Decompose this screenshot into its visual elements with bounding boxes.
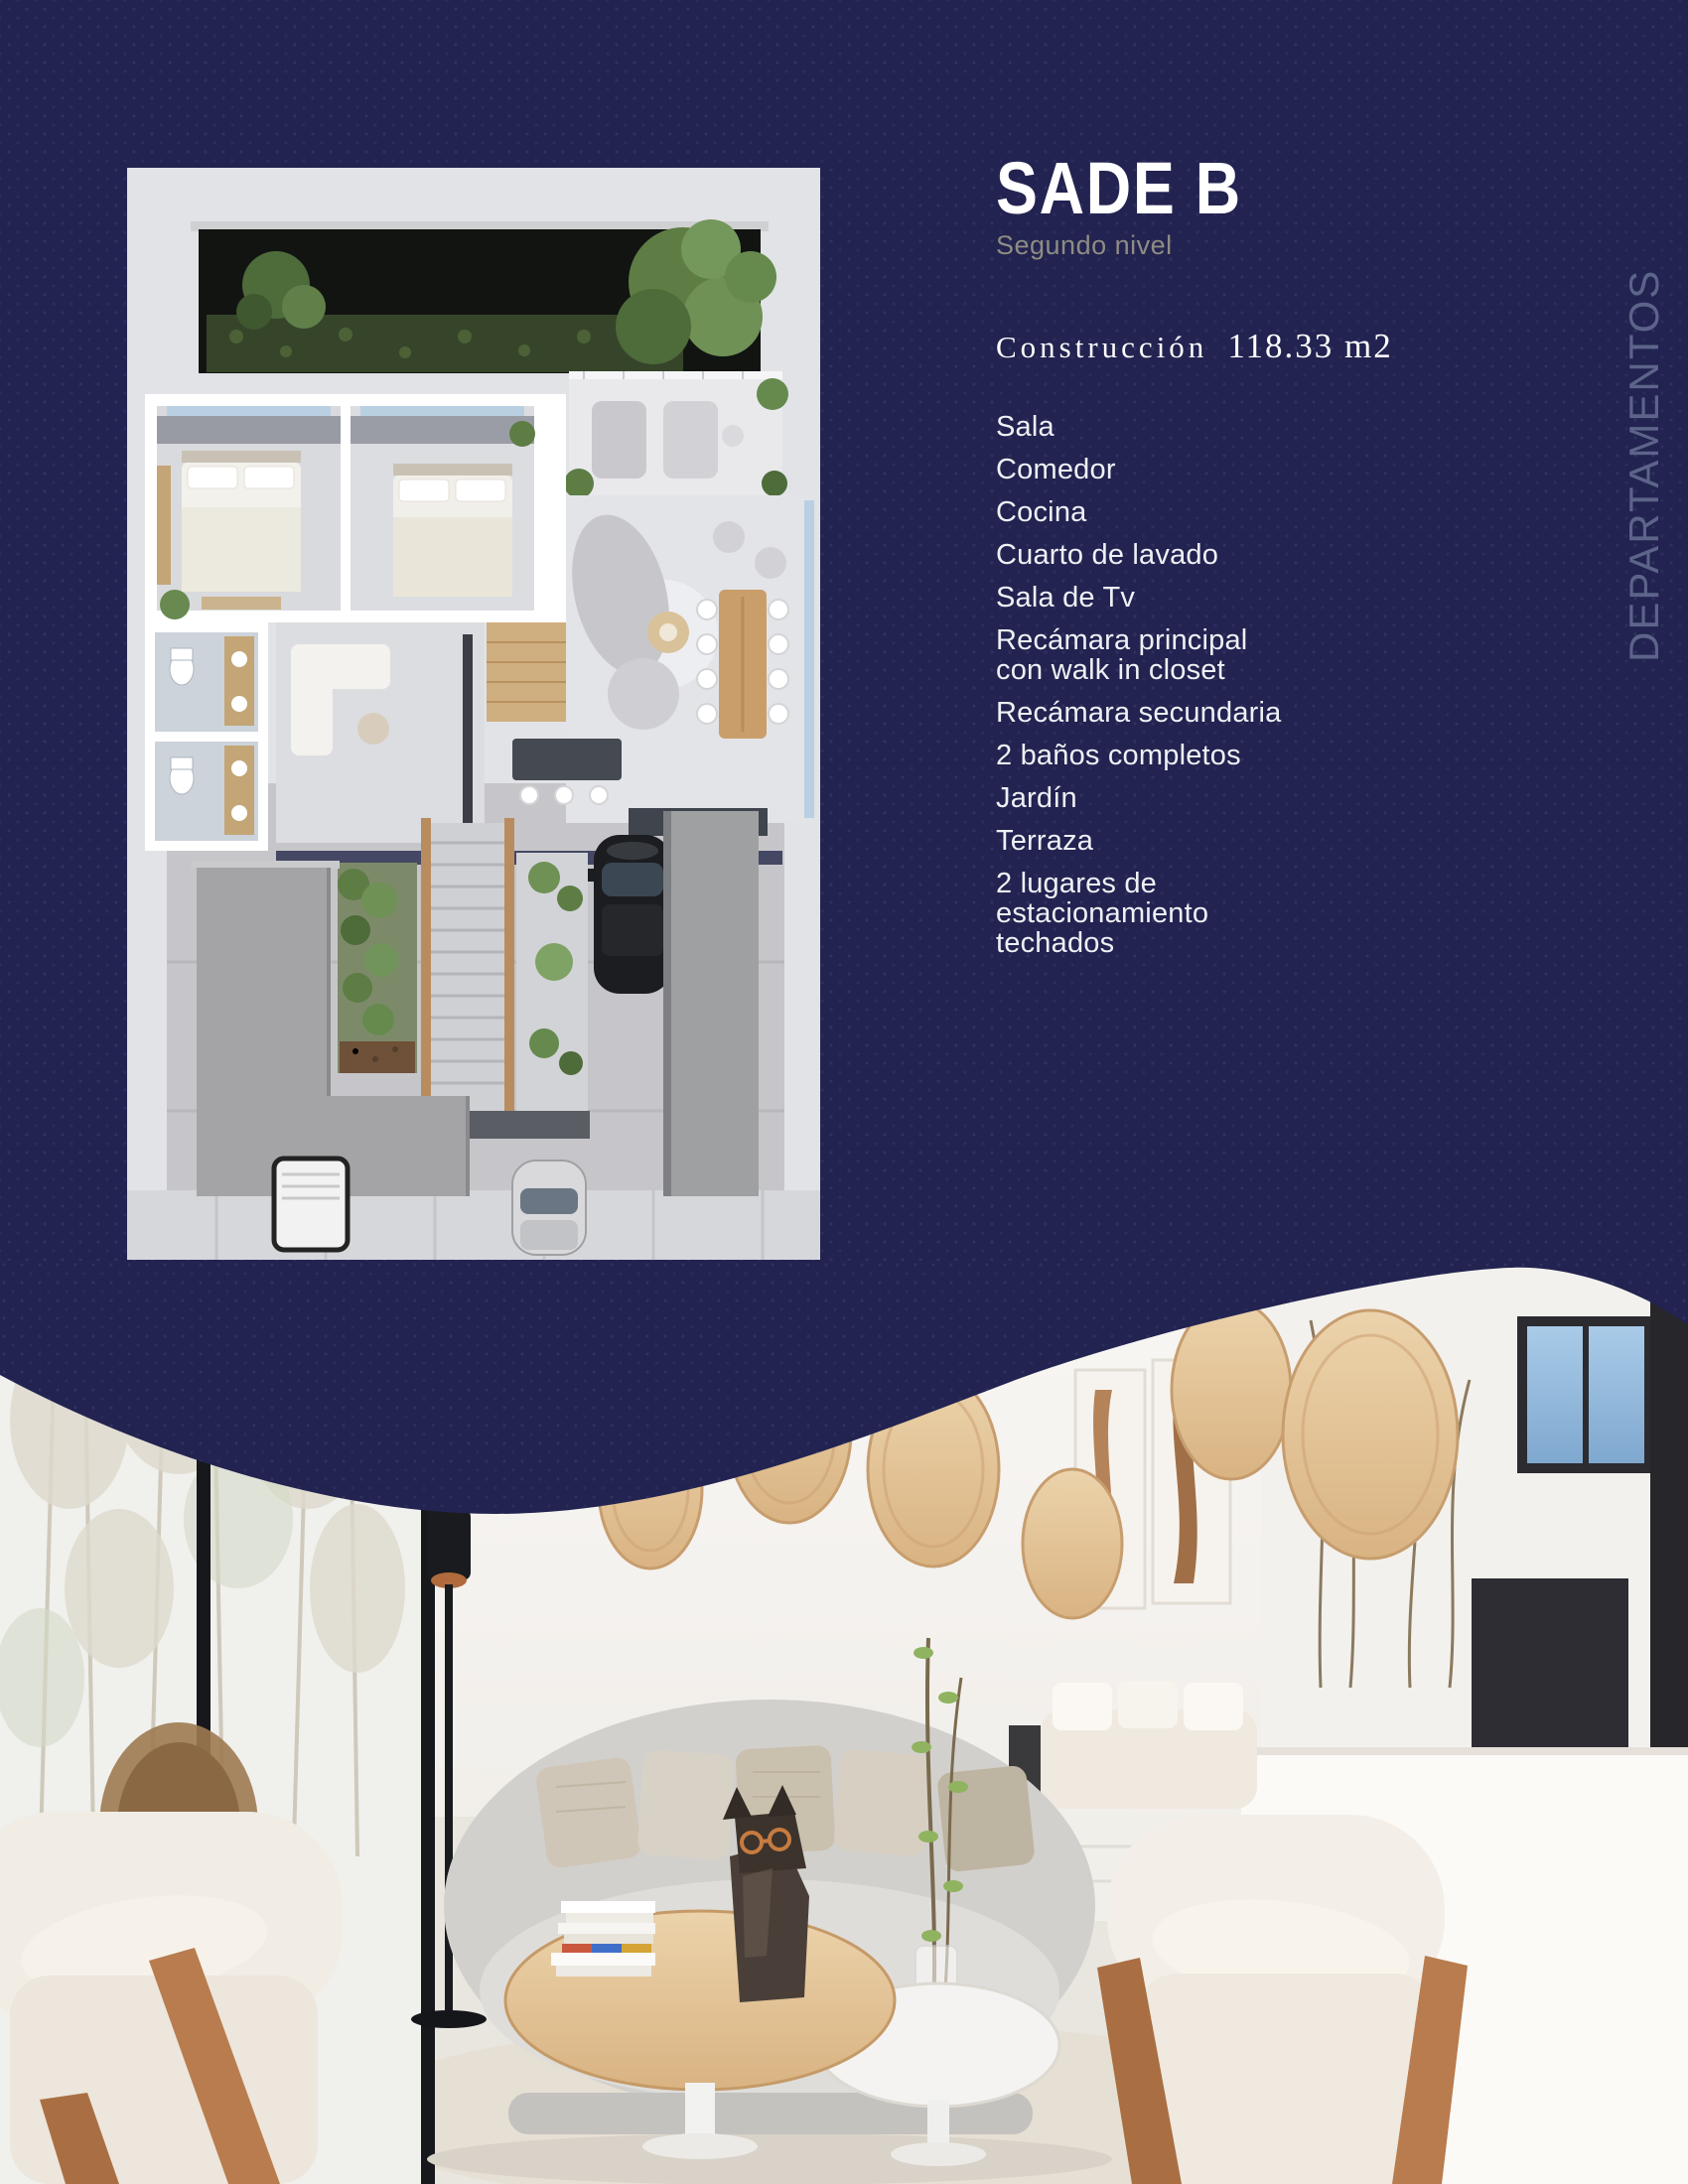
terrace xyxy=(564,371,788,498)
page-title: SADE B xyxy=(996,149,1401,228)
feature-item: Jardín xyxy=(996,783,1473,813)
vertical-section-label: DEPARTAMENTOS xyxy=(1620,313,1668,662)
floor-plan-illustration xyxy=(127,168,820,1260)
wave-overlay xyxy=(0,1261,1688,2184)
feature-item: Sala de Tv xyxy=(996,583,1473,613)
feature-item: Comedor xyxy=(996,455,1473,484)
floor-plan-card xyxy=(127,168,820,1260)
feature-item: Terraza xyxy=(996,826,1473,856)
interior-photo xyxy=(0,1261,1688,2184)
feature-item: Recámara principal con walk in closet xyxy=(996,625,1473,685)
brochure-page: { "colors":{ "navy":"#222350", "card-bg"… xyxy=(0,0,1688,2184)
feature-item: 2 lugares de estacionamiento techados xyxy=(996,869,1473,958)
construction-line: Construcción 118.33 m2 xyxy=(996,327,1473,366)
construction-label: Construcción xyxy=(996,330,1207,365)
feature-item: Cuarto de lavado xyxy=(996,540,1473,570)
feature-item: Cocina xyxy=(996,497,1473,527)
bed-secundaria xyxy=(393,464,512,597)
feature-list: Sala Comedor Cocina Cuarto de lavado Sal… xyxy=(996,412,1473,958)
info-panel: SADE B Segundo nivel Construcción 118.33… xyxy=(996,149,1473,971)
bedrooms xyxy=(145,394,566,622)
roof-garden-strip xyxy=(191,219,776,373)
garden xyxy=(338,863,417,1073)
construction-value: 118.33 m2 xyxy=(1227,327,1392,366)
feature-item: 2 baños completos xyxy=(996,741,1473,770)
side-path xyxy=(516,853,588,1111)
feature-item: Sala xyxy=(996,412,1473,442)
page-subtitle: Segundo nivel xyxy=(996,230,1473,261)
bathrooms xyxy=(145,622,268,851)
bed-principal xyxy=(182,451,301,610)
feature-item: Recámara secundaria xyxy=(996,698,1473,728)
